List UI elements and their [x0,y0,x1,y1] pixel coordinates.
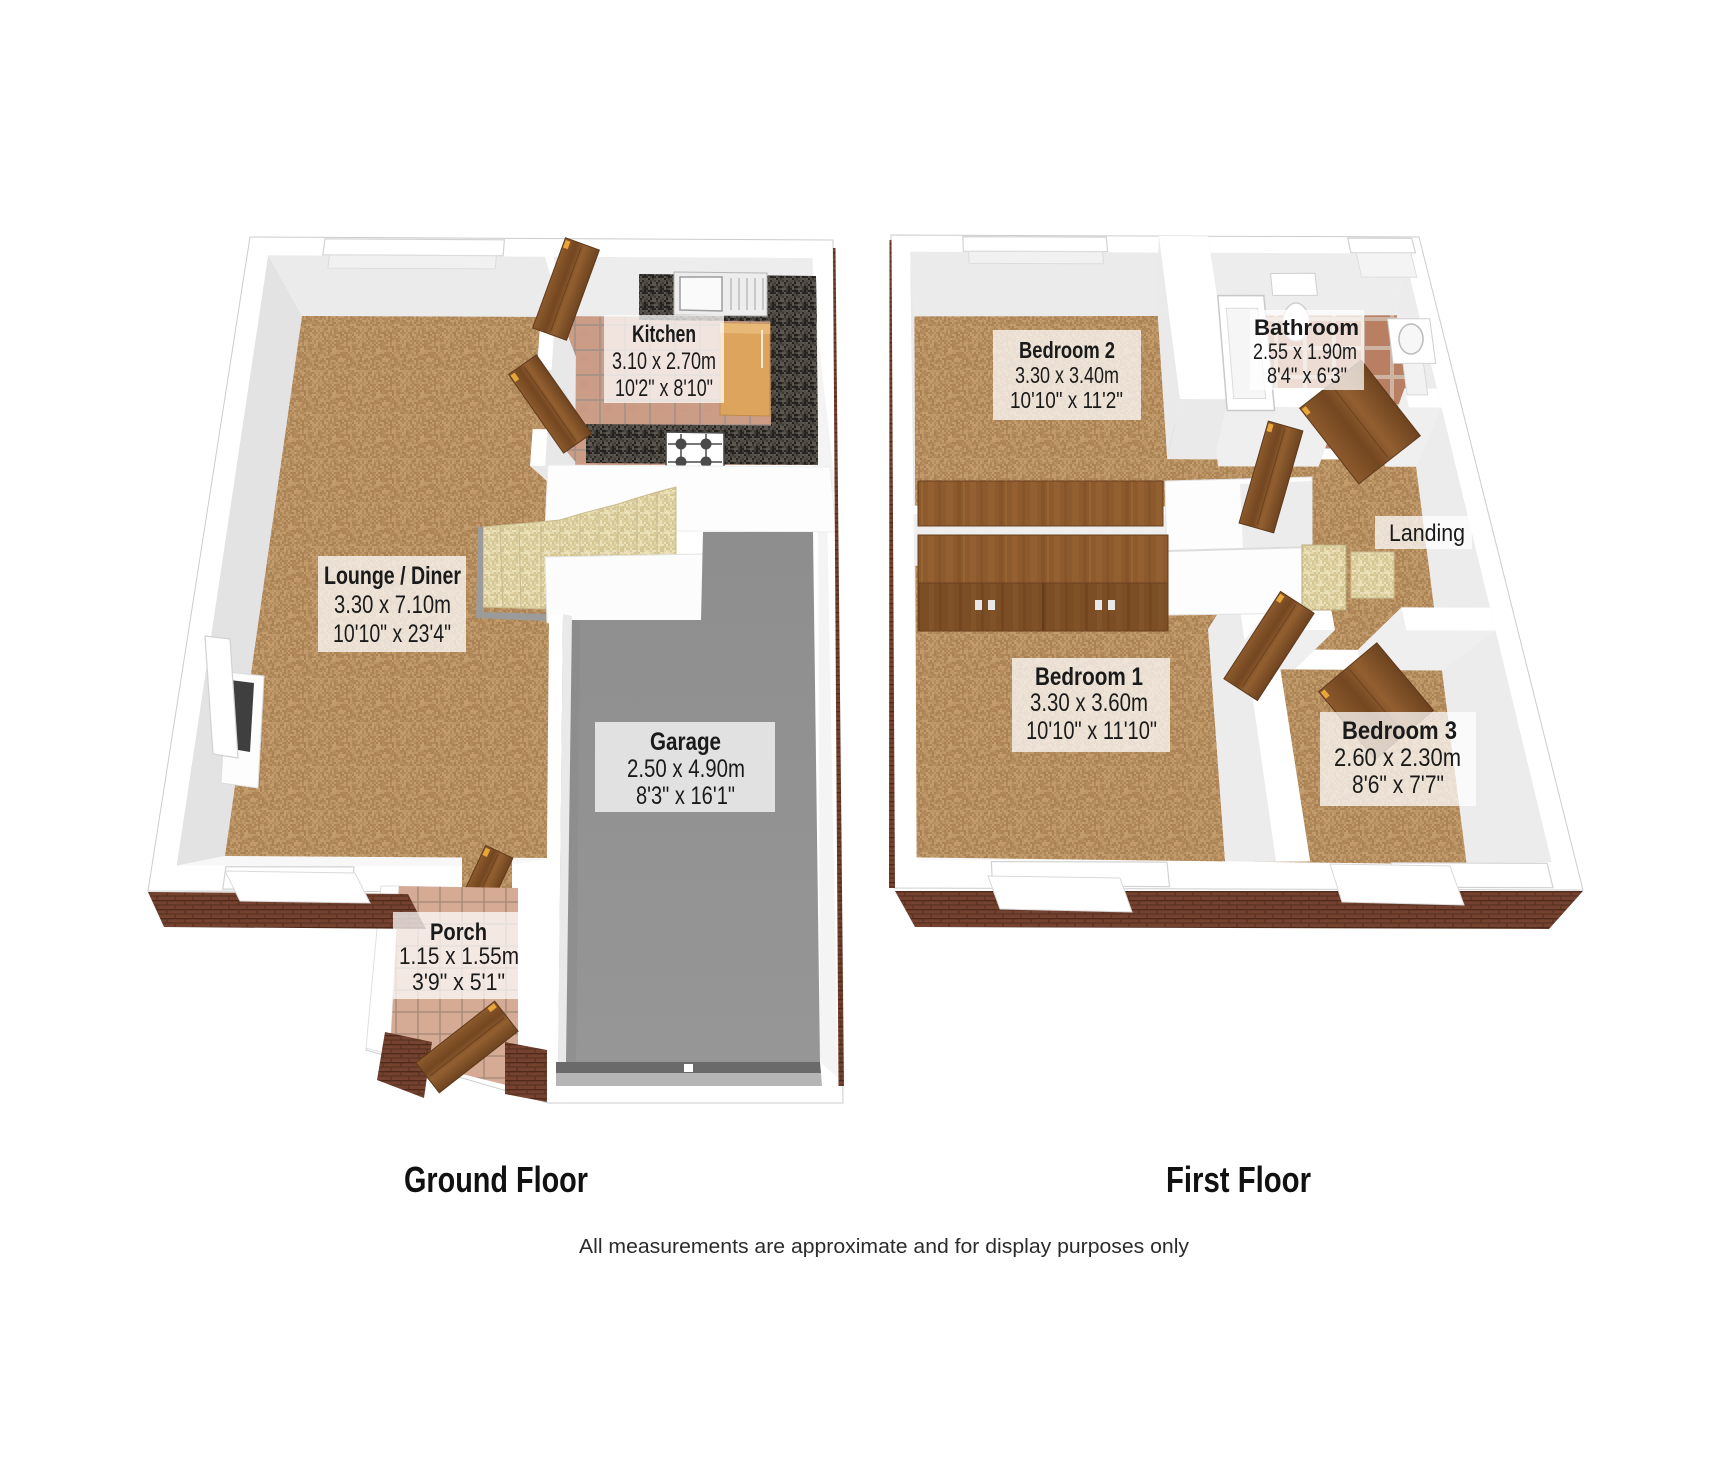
svg-text:3.30 x 7.10m: 3.30 x 7.10m [334,591,451,619]
svg-text:3'9" x 5'1": 3'9" x 5'1" [412,969,505,996]
svg-text:Lounge / Diner: Lounge / Diner [324,562,461,590]
svg-text:Bathroom: Bathroom [1254,315,1359,340]
svg-text:8'4" x 6'3": 8'4" x 6'3" [1267,363,1347,388]
svg-text:10'10" x 11'2": 10'10" x 11'2" [1010,387,1123,413]
svg-text:Bedroom 1: Bedroom 1 [1035,663,1143,691]
svg-text:10'10" x 11'10": 10'10" x 11'10" [1026,717,1157,745]
svg-text:First Floor: First Floor [1166,1159,1311,1200]
svg-text:All measurements are approxima: All measurements are approximate and for… [579,1236,1189,1258]
svg-text:8'3" x 16'1": 8'3" x 16'1" [636,782,735,810]
svg-text:Garage: Garage [650,728,721,756]
svg-text:Landing: Landing [1389,520,1465,547]
svg-text:Porch: Porch [430,919,487,946]
svg-text:Bedroom 2: Bedroom 2 [1019,337,1115,363]
svg-text:2.50 x 4.90m: 2.50 x 4.90m [627,755,745,783]
svg-text:1.15 x 1.55m: 1.15 x 1.55m [399,943,519,970]
svg-text:Ground Floor: Ground Floor [404,1159,588,1200]
svg-text:2.60 x 2.30m: 2.60 x 2.30m [1334,744,1461,772]
svg-text:2.55 x 1.90m: 2.55 x 1.90m [1253,339,1357,364]
svg-text:3.30 x 3.60m: 3.30 x 3.60m [1030,689,1148,717]
svg-text:3.10 x 2.70m: 3.10 x 2.70m [612,348,716,375]
svg-text:10'2" x 8'10": 10'2" x 8'10" [615,375,713,402]
svg-text:3.30 x 3.40m: 3.30 x 3.40m [1015,362,1119,388]
svg-text:Kitchen: Kitchen [632,321,696,348]
svg-text:8'6" x 7'7": 8'6" x 7'7" [1352,771,1444,799]
svg-text:10'10" x 23'4": 10'10" x 23'4" [333,620,451,648]
svg-text:Bedroom 3: Bedroom 3 [1342,717,1457,745]
